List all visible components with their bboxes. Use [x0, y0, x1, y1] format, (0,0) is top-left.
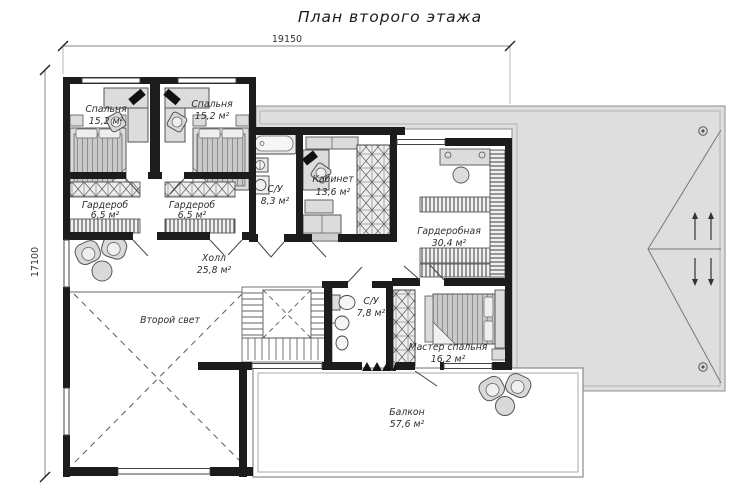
room-area-bath-upper: 8,3 м² — [261, 196, 290, 207]
room-label-bedroom-right: Спальня — [191, 99, 233, 110]
room-label-office: Кабинет — [312, 174, 354, 185]
room-area-bath-lower: 7,8 м² — [357, 308, 386, 319]
room-label-bath-upper: С/У — [267, 184, 284, 195]
dressing-room-shelving — [420, 149, 505, 277]
hall-seating — [72, 234, 128, 281]
room-label-dressing-room: Гардеробная — [417, 226, 481, 237]
hall-table-icon — [92, 261, 112, 281]
room-label-balcony: Балкон — [389, 407, 424, 418]
room-area-balcony: 57,6 м² — [390, 419, 425, 430]
office-shelf — [306, 137, 358, 149]
room-label-hall: Холл — [201, 253, 226, 264]
room-area-office: 13,6 м² — [316, 187, 351, 198]
floor-plan-canvas: 19150 17100 План второго этажа Спальня 1… — [0, 0, 756, 502]
toilet-icon — [332, 295, 355, 310]
master-cabinet-icon — [393, 290, 415, 366]
dimension-left-value: 17100 — [30, 247, 41, 277]
room-area-dressing-room: 30,4 м² — [432, 238, 467, 249]
room-area-bedroom-left: 15,2 м² — [89, 116, 124, 127]
dimension-left — [40, 65, 50, 482]
dimension-top-value: 19150 — [272, 34, 302, 45]
room-area-wardrobe-left: 6,5 м² — [91, 210, 120, 221]
room-area-hall: 25,8 м² — [197, 265, 232, 276]
page-title: План второго этажа — [298, 8, 482, 26]
bidet-icon — [336, 336, 348, 350]
sink-icon — [332, 316, 349, 330]
bathtub-icon — [252, 133, 296, 154]
room-label-bath-lower: С/У — [363, 296, 380, 307]
room-label-bedroom-left: Спальня — [85, 104, 127, 115]
room-label-void: Второй свет — [140, 315, 200, 326]
room-label-master-bedroom: Мастер спальня — [409, 342, 488, 353]
room-area-master-bedroom: 16,2 м² — [431, 354, 466, 365]
room-area-bedroom-right: 15,2 м² — [195, 111, 230, 122]
office-cabinet-icon — [357, 145, 390, 240]
room-area-wardrobe-right: 6,5 м² — [178, 210, 207, 221]
staircase — [242, 287, 332, 362]
balcony-table-icon — [496, 397, 515, 416]
